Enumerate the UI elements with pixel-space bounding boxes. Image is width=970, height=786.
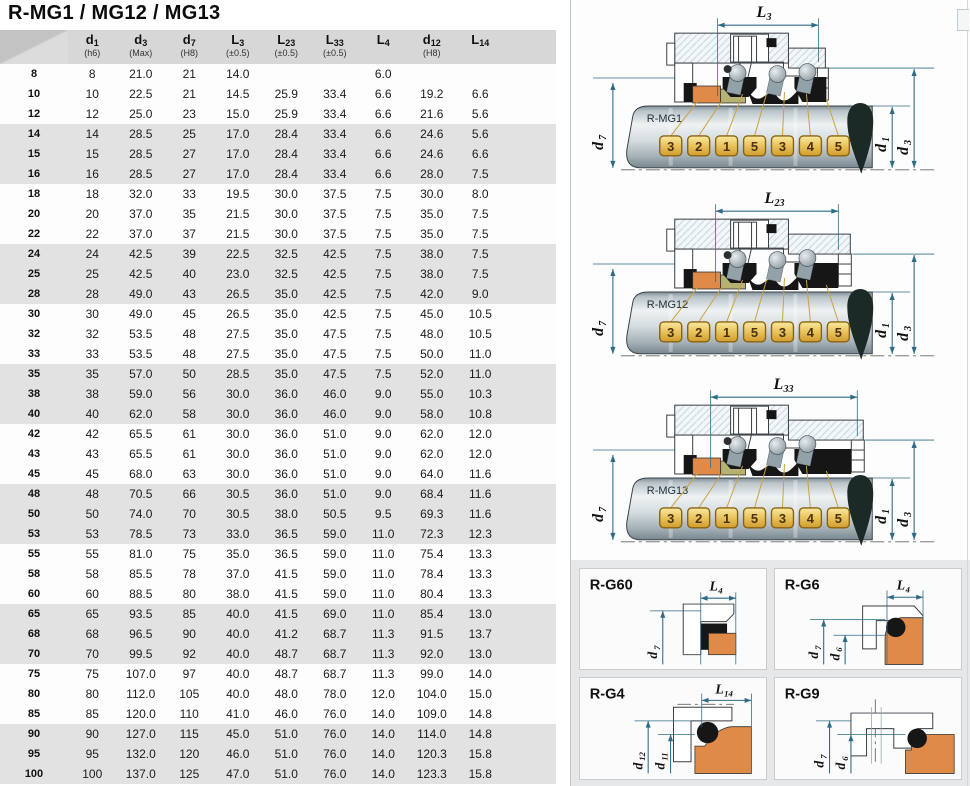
row-size-label: 15 [0,148,68,160]
table-cell: 30.0 [262,187,311,201]
table-cell: 68.7 [311,667,360,681]
table-cell: 109.0 [408,707,457,721]
table-cell: 27.5 [214,347,263,361]
table-cell: 49.0 [117,307,166,321]
table-cell: 7.5 [359,187,408,201]
svg-text:14: 14 [724,689,733,699]
column-header: L3(±0.5) [214,30,263,64]
table-row: 121225.02315.025.933.46.621.65.6 [0,104,556,124]
catalog-page: R-MG1 / MG12 / MG13 d1(h6)d3(Max)d7(H8)L… [0,0,970,786]
table-cell: 17.0 [214,167,263,181]
table-cell: 22 [68,227,117,241]
panel-name-label: R-G6 [785,577,820,593]
diagram-name-label: R-MG1 [647,113,682,125]
column-header: L14 [456,30,505,64]
table-cell: 53 [68,527,117,541]
table-cell: 30.0 [214,467,263,481]
table-cell: 14.0 [359,767,408,781]
table-row: 252542.54023.032.542.57.538.07.5 [0,264,556,284]
l4-dimension: L 4 [887,577,923,599]
table-cell: 28.4 [262,127,311,141]
svg-text:23: 23 [773,198,784,209]
table-cell: 50.0 [408,347,457,361]
svg-text:4: 4 [717,585,723,595]
table-row: 686896.59040.041.268.711.391.513.7 [0,624,556,644]
table-cell: 85 [165,607,214,621]
table-cell: 30 [68,307,117,321]
svg-text:d: d [812,761,827,768]
svg-text:4: 4 [904,584,910,594]
table-cell: 11.6 [456,467,505,481]
svg-text:3: 3 [667,511,674,526]
svg-text:d: d [895,332,912,341]
table-cell: 33.0 [214,527,263,541]
table-cell: 51.0 [311,427,360,441]
table-cell: 11.6 [456,487,505,501]
table-cell: 48.7 [262,647,311,661]
svg-text:6: 6 [834,647,844,652]
svg-text:d: d [590,141,607,150]
table-row: 100100137.012547.051.076.014.0123.315.8 [0,764,556,784]
table-cell: 5.6 [456,107,505,121]
table-cell: 9.5 [359,507,408,521]
table-cell: 78.4 [408,567,457,581]
svg-text:d: d [645,652,660,659]
row-size-label: 45 [0,468,68,480]
svg-text:d: d [590,327,607,336]
table-cell: 28.5 [117,127,166,141]
row-size-label: 12 [0,108,68,120]
svg-text:3: 3 [903,326,914,332]
table-row: 535378.57333.036.559.011.072.312.3 [0,524,556,544]
table-cell: 21.6 [408,107,457,121]
table-row: 484870.56630.536.051.09.068.411.6 [0,484,556,504]
table-cell: 7.5 [456,247,505,261]
table-cell: 13.3 [456,587,505,601]
table-cell: 19.2 [408,87,457,101]
table-cell: 11.3 [359,647,408,661]
table-cell: 42.5 [311,287,360,301]
table-cell: 30.0 [214,447,263,461]
table-cell: 10.8 [456,407,505,421]
table-cell: 74.0 [117,507,166,521]
svg-text:5: 5 [751,511,758,526]
table-row: 202037.03521.530.037.57.535.07.5 [0,204,556,224]
table-cell: 11.0 [456,347,505,361]
row-size-label: 75 [0,668,68,680]
diagram-name-label: R-MG12 [647,299,688,311]
svg-text:3: 3 [903,512,914,518]
table-cell: 9.0 [359,407,408,421]
table-cell: 21 [165,67,214,81]
svg-text:L: L [764,190,775,207]
d7-dimension: d7 [590,455,616,540]
seat-part [709,633,736,654]
table-cell: 35 [68,367,117,381]
table-cell: 90 [165,627,214,641]
table-cell: 40.0 [214,667,263,681]
table-cell: 48 [68,487,117,501]
table-cell: 45.0 [214,727,263,741]
table-row: 555581.07535.036.559.011.075.413.3 [0,544,556,564]
table-cell: 36.0 [262,407,311,421]
table-cell: 33.4 [311,107,360,121]
table-cell: 76.0 [311,747,360,761]
panel-rg60: R-G60 L 4 d [579,568,767,670]
table-cell: 40.0 [214,627,263,641]
table-cell: 33 [165,187,214,201]
svg-text:1: 1 [723,139,730,154]
table-cell: 37.5 [311,207,360,221]
table-cell: 48 [165,347,214,361]
table-cell: 14.0 [359,727,408,741]
table-corner-cell [0,30,68,64]
svg-text:L: L [772,376,783,393]
row-size-label: 70 [0,648,68,660]
row-size-label: 18 [0,188,68,200]
table-row: 161628.52717.028.433.46.628.07.5 [0,164,556,184]
row-size-label: 90 [0,728,68,740]
table-row: 222237.03721.530.037.57.535.07.5 [0,224,556,244]
table-cell: 12.3 [456,527,505,541]
table-cell: 37.5 [311,187,360,201]
table-cell: 70 [68,647,117,661]
seal-parts [684,64,827,104]
table-cell: 40.0 [214,647,263,661]
row-size-label: 14 [0,128,68,140]
table-cell: 32 [68,327,117,341]
table-cell: 59.0 [311,547,360,561]
table-cell: 9.0 [456,287,505,301]
table-cell: 28.5 [117,167,166,181]
table-cell: 15.8 [456,767,505,781]
l4-dimension: L 4 [701,578,736,600]
table-cell: 58 [165,407,214,421]
table-cell: 61 [165,447,214,461]
table-cell: 48.0 [408,327,457,341]
d1-dimension: d1 [873,293,895,354]
table-cell: 32.0 [117,187,166,201]
window-edge-tab [957,9,969,31]
table-cell: 59.0 [311,587,360,601]
table-cell: 30.0 [262,207,311,221]
table-cell: 88.5 [117,587,166,601]
table-cell: 7.5 [456,267,505,281]
column-header: d3(Max) [117,30,166,64]
table-cell: 25.9 [262,87,311,101]
table-cell: 14.8 [456,727,505,741]
table-cell: 120 [165,747,214,761]
table-cell: 63 [165,467,214,481]
table-cell: 9.0 [359,487,408,501]
row-size-label: 38 [0,388,68,400]
table-cell: 46.0 [262,707,311,721]
table-cell: 27.5 [214,327,263,341]
table-cell: 10.5 [456,307,505,321]
row-size-label: 40 [0,408,68,420]
row-size-label: 10 [0,88,68,100]
table-cell: 120.0 [117,707,166,721]
svg-text:1: 1 [723,325,730,340]
table-row: 434365.56130.036.051.09.062.012.0 [0,444,556,464]
seat-panels: R-G60 L 4 d [571,560,970,786]
table-cell: 105 [165,687,214,701]
table-row: 242442.53922.532.542.57.538.07.5 [0,244,556,264]
table-row: 353557.05028.535.047.57.552.011.0 [0,364,556,384]
table-cell: 43 [165,287,214,301]
table-cell: 59.0 [311,527,360,541]
seat-part [693,458,721,475]
table-cell: 6.6 [359,107,408,121]
table-cell: 40.0 [214,607,263,621]
table-row: 181832.03319.530.037.57.530.08.0 [0,184,556,204]
seal-diagram-rmg13: R-MG13 3 2 1 5 3 4 5 [571,372,970,558]
svg-text:5: 5 [835,139,842,154]
table-cell: 41.5 [262,587,311,601]
table-row: 151528.52717.028.433.46.624.66.6 [0,144,556,164]
svg-text:1: 1 [881,509,892,514]
table-cell: 69.0 [311,607,360,621]
row-size-label: 85 [0,708,68,720]
seal-diagram-rmg12: R-MG12 3 2 1 5 3 4 5 [571,186,970,372]
svg-text:3: 3 [667,139,674,154]
table-cell: 38.0 [408,247,457,261]
svg-text:L: L [714,682,723,697]
table-cell: 45 [68,467,117,481]
d3-dimension: d3 [895,255,917,354]
table-cell: 41.2 [262,627,311,641]
table-cell: 85 [68,707,117,721]
svg-text:d: d [873,329,890,338]
table-cell: 6.6 [359,167,408,181]
table-cell: 51.0 [311,487,360,501]
table-cell: 51.0 [262,767,311,781]
table-row: 141428.52517.028.433.46.624.65.6 [0,124,556,144]
table-cell: 14.8 [456,707,505,721]
table-cell: 99.0 [408,667,457,681]
row-size-label: 55 [0,548,68,560]
row-size-label: 65 [0,608,68,620]
svg-text:2: 2 [695,139,702,154]
table-cell: 110 [165,707,214,721]
table-cell: 107.0 [117,667,166,681]
table-row: 8080112.010540.048.078.012.0104.015.0 [0,684,556,704]
spring-icon [769,252,786,269]
table-cell: 120.3 [408,747,457,761]
svg-text:6: 6 [840,756,850,761]
table-cell: 42.5 [311,247,360,261]
table-row: 9595132.012046.051.076.014.0120.315.8 [0,744,556,764]
table-cell: 66 [165,487,214,501]
table-cell: 7.5 [359,367,408,381]
d3-dimension: d3 [895,441,917,540]
table-cell: 26.5 [214,287,263,301]
table-cell: 7.5 [359,267,408,281]
row-size-label: 25 [0,268,68,280]
table-cell: 19.5 [214,187,263,201]
svg-text:d: d [827,654,842,661]
table-cell: 41.0 [214,707,263,721]
table-cell: 28.5 [117,147,166,161]
table-cell: 65.5 [117,427,166,441]
svg-text:d: d [833,763,848,770]
table-cell: 25.0 [117,107,166,121]
table-cell: 48.7 [262,667,311,681]
table-cell: 36.0 [262,447,311,461]
table-cell: 50 [68,507,117,521]
o-ring [697,722,718,743]
table-cell: 64.0 [408,467,457,481]
table-cell: 37.0 [117,227,166,241]
table-cell: 42.0 [408,287,457,301]
part-callouts: 3 2 1 5 3 4 5 [660,136,850,156]
table-cell: 47.5 [311,327,360,341]
table-cell: 11.6 [456,507,505,521]
table-cell: 14.0 [456,667,505,681]
table-cell: 15.0 [456,687,505,701]
column-header: d1(h6) [68,30,117,64]
spring-icon [729,437,746,454]
spring-icon [769,438,786,455]
table-cell: 76.0 [311,767,360,781]
table-cell: 30.5 [214,507,263,521]
table-body: 8821.02114.06.0101022.52114.525.933.46.6… [0,64,556,784]
o-ring [886,618,905,637]
table-cell: 7.5 [456,207,505,221]
table-cell: 39 [165,247,214,261]
svg-text:7: 7 [652,645,662,650]
table-cell: 11.0 [359,547,408,561]
svg-text:3: 3 [766,12,772,23]
table-cell: 21.5 [214,207,263,221]
panel-rg4: R-G4 L 14 d [579,677,767,779]
table-cell: 47.5 [311,367,360,381]
row-size-label: 80 [0,688,68,700]
table-cell: 40.0 [214,687,263,701]
table-cell: 14.0 [359,747,408,761]
table-cell: 30.0 [214,427,263,441]
column-header: d7(H8) [165,30,214,64]
table-row: 606088.58038.041.559.011.080.413.3 [0,584,556,604]
table-cell: 53.5 [117,347,166,361]
svg-text:7: 7 [598,320,609,326]
svg-text:1: 1 [881,323,892,328]
column-header: L23(±0.5) [262,30,311,64]
table-cell: 33.4 [311,167,360,181]
table-cell: 35.0 [262,367,311,381]
table-cell: 33.4 [311,127,360,141]
table-cell: 78.5 [117,527,166,541]
table-cell: 28.4 [262,167,311,181]
table-cell: 21.0 [117,67,166,81]
row-size-label: 22 [0,228,68,240]
key-block [767,38,777,47]
table-cell: 12 [68,107,117,121]
table-cell: 28.4 [262,147,311,161]
table-cell: 24 [68,247,117,261]
table-cell: 13.0 [456,607,505,621]
table-cell: 35.0 [408,207,457,221]
table-row: 383859.05630.036.046.09.055.010.3 [0,384,556,404]
panel-rg6: R-G6 L 4 d7 [774,568,962,670]
table-cell: 23 [165,107,214,121]
row-size-label: 60 [0,588,68,600]
seat-part [693,272,721,289]
table-cell: 12.0 [359,687,408,701]
set-screw-icon [734,222,757,248]
svg-text:5: 5 [835,511,842,526]
table-cell: 9.0 [359,467,408,481]
table-cell: 20 [68,207,117,221]
table-cell: 53.5 [117,327,166,341]
table-cell: 49.0 [117,287,166,301]
table-cell: 42.5 [311,267,360,281]
row-size-label: 16 [0,168,68,180]
table-cell: 9.0 [359,387,408,401]
table-cell: 21.5 [214,227,263,241]
svg-text:5: 5 [835,325,842,340]
table-cell: 70 [165,507,214,521]
table-cell: 45 [165,307,214,321]
table-cell: 90 [68,727,117,741]
row-size-label: 48 [0,488,68,500]
table-cell: 35.0 [408,227,457,241]
table-cell: 16 [68,167,117,181]
table-cell: 7.5 [359,227,408,241]
table-cell: 35 [165,207,214,221]
table-cell: 32.5 [262,267,311,281]
row-size-label: 50 [0,508,68,520]
table-cell: 42.5 [311,307,360,321]
svg-text:d: d [806,652,821,659]
table-cell: 6.6 [456,87,505,101]
table-cell: 17.0 [214,147,263,161]
table-cell: 12.0 [456,427,505,441]
table-cell: 62.0 [117,407,166,421]
table-cell: 35.0 [262,307,311,321]
svg-text:d: d [590,513,607,522]
panel-name-label: R-G9 [785,687,820,703]
spring-icon [799,436,816,453]
table-cell: 55.0 [408,387,457,401]
table-cell: 42.5 [117,267,166,281]
table-cell: 6.6 [359,127,408,141]
column-header: L4 [359,30,408,64]
table-cell: 93.5 [117,607,166,621]
d7-dimension: d7 [590,83,616,168]
svg-text:3: 3 [779,511,786,526]
table-cell: 22.5 [117,87,166,101]
table-cell: 24.6 [408,127,457,141]
table-cell: 6.0 [359,67,408,81]
svg-text:d: d [653,763,668,770]
table-cell: 46.0 [311,387,360,401]
table-cell: 80 [68,687,117,701]
table-cell: 45.0 [408,307,457,321]
spring-icon [799,250,816,267]
svg-text:5: 5 [751,139,758,154]
table-row: 333353.54827.535.047.57.550.011.0 [0,344,556,364]
table-cell: 7.5 [359,327,408,341]
table-cell: 7.5 [359,247,408,261]
table-cell: 36.0 [262,487,311,501]
table-cell: 97 [165,667,214,681]
table-cell: 59.0 [117,387,166,401]
diagram-name-label: R-MG13 [647,485,688,497]
table-cell: 51.0 [311,447,360,461]
table-cell: 8 [68,67,117,81]
table-cell: 25 [68,267,117,281]
